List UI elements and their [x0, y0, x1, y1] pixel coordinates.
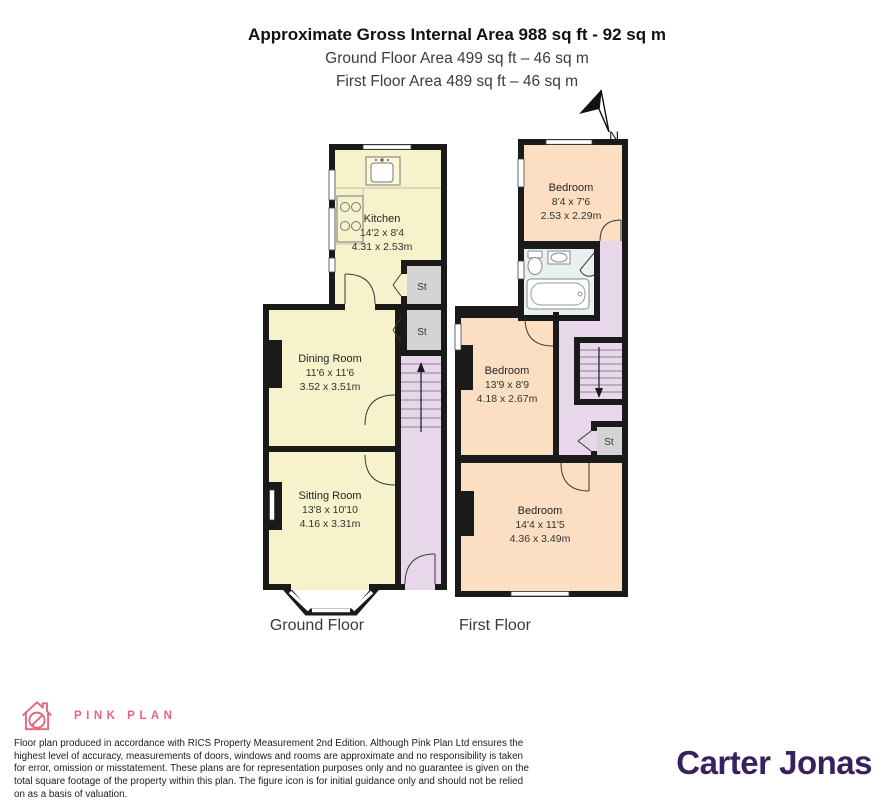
bedroom-rear-label: Bedroom: [549, 182, 594, 194]
bedroom-front-dims-imperial: 14'4 x 11'5: [515, 519, 565, 531]
kitchen-dims-imperial: 14'2 x 8'4: [360, 227, 404, 239]
dining-room-dims-metric: 3.52 x 3.51m: [300, 381, 361, 393]
first-floor-label: First Floor: [415, 617, 575, 635]
sitting-room-dims-metric: 4.16 x 3.31m: [300, 518, 361, 530]
bay-window: [285, 584, 377, 612]
bedroom-middle-dims-imperial: 13'9 x 8'9: [485, 379, 529, 391]
sink-icon: [366, 157, 400, 185]
kitchen-dims-metric: 4.31 x 2.53m: [352, 241, 413, 253]
sitting-room-label: Sitting Room: [299, 490, 362, 502]
kitchen-label: Kitchen: [364, 213, 401, 225]
ground-floor-plan: Kitchen 14'2 x 8'4 4.31 x 2.53m Dining R…: [259, 144, 449, 622]
basin-icon: [548, 251, 570, 264]
bedroom-rear-dims-imperial: 8'4 x 7'6: [552, 196, 591, 208]
sitting-room-dims-imperial: 13'8 x 10'10: [302, 504, 358, 516]
dining-room-dims-imperial: 11'6 x 11'6: [306, 367, 355, 379]
page-title: Approximate Gross Internal Area 988 sq f…: [32, 25, 882, 45]
storage-landing-label: St: [604, 437, 614, 448]
dining-room-label: Dining Room: [298, 353, 362, 365]
bedroom-middle-dims-metric: 4.18 x 2.67m: [477, 393, 538, 405]
disclaimer-text: Floor plan produced in accordance with R…: [14, 738, 530, 800]
floor-plan-page: Approximate Gross Internal Area 988 sq f…: [0, 0, 882, 800]
pink-plan-brand-name: PINK PLAN: [74, 710, 176, 722]
bathtub-icon: [527, 279, 589, 309]
landing-upper: [600, 249, 622, 321]
header: Approximate Gross Internal Area 988 sq f…: [32, 0, 882, 91]
ground-floor-area-subtitle: Ground Floor Area 499 sq ft – 46 sq m: [32, 50, 882, 68]
pink-plan-brand: PINK PLAN: [18, 697, 176, 735]
ground-floor-label: Ground Floor: [237, 617, 397, 635]
pink-plan-logo-icon: [18, 697, 56, 735]
first-floor-area-subtitle: First Floor Area 489 sq ft – 46 sq m: [32, 73, 882, 91]
carter-jonas-logo: Carter Jonas: [672, 744, 872, 782]
toilet-icon: [528, 251, 542, 275]
first-floor-plan: Bedroom 8'4 x 7'6 2.53 x 2.29m Bedroom 1…: [449, 139, 631, 604]
storage-lower-label: St: [417, 327, 427, 338]
bedroom-rear-dims-metric: 2.53 x 2.29m: [541, 210, 602, 222]
north-arrow-icon: N: [573, 84, 625, 144]
bedroom-front-dims-metric: 4.36 x 3.49m: [510, 533, 571, 545]
bedroom-front-label: Bedroom: [518, 505, 563, 517]
door-openings: [600, 241, 622, 249]
storage-upper-label: St: [417, 282, 427, 293]
bedroom-middle-label: Bedroom: [485, 365, 530, 377]
